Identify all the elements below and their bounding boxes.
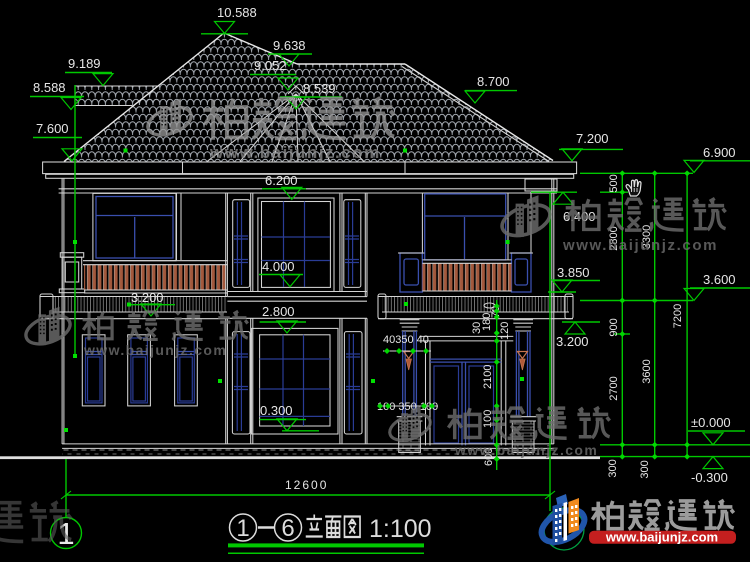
svg-text:6: 6 (281, 515, 294, 542)
svg-text:2100: 2100 (482, 365, 494, 389)
svg-text:12600: 12600 (285, 478, 328, 492)
svg-text:9.189: 9.189 (68, 56, 101, 71)
svg-text:6.900: 6.900 (703, 145, 736, 160)
svg-text:8.588: 8.588 (33, 80, 66, 95)
svg-text:2700: 2700 (608, 376, 620, 400)
svg-text:0.300: 0.300 (260, 403, 293, 418)
svg-text:www.baijunjz.com: www.baijunjz.com (605, 530, 718, 545)
svg-text:www.baijunjz.com: www.baijunjz.com (209, 143, 381, 162)
svg-text:3.200: 3.200 (556, 334, 589, 349)
svg-text:www.baijunjz.com: www.baijunjz.com (562, 237, 718, 254)
svg-text:-0.300: -0.300 (691, 470, 728, 485)
svg-text:±0.000: ±0.000 (691, 415, 731, 430)
svg-text:1: 1 (236, 515, 249, 542)
svg-text:1:100: 1:100 (369, 515, 432, 543)
svg-text:9.638: 9.638 (273, 38, 306, 53)
svg-text:500: 500 (608, 174, 620, 192)
svg-text:40350 40: 40350 40 (383, 334, 429, 346)
svg-text:www.baijunjz.com: www.baijunjz.com (454, 442, 598, 458)
svg-text:4.000: 4.000 (262, 259, 295, 274)
svg-text:2.800: 2.800 (262, 304, 295, 319)
svg-text:8.700: 8.700 (477, 74, 510, 89)
svg-text:3600: 3600 (641, 359, 653, 383)
svg-text:8.539: 8.539 (303, 81, 336, 96)
svg-text:7.600: 7.600 (36, 121, 69, 136)
svg-text:3.600: 3.600 (703, 272, 736, 287)
svg-text:9.052: 9.052 (254, 58, 287, 73)
svg-text:3.200: 3.200 (131, 290, 164, 305)
svg-text:3.850: 3.850 (557, 265, 590, 280)
svg-text:7200: 7200 (672, 304, 684, 328)
svg-text:10.588: 10.588 (217, 5, 257, 20)
svg-text:300: 300 (607, 459, 619, 477)
svg-text:300: 300 (639, 460, 651, 478)
svg-text:6.200: 6.200 (265, 173, 298, 188)
svg-text:www.baijunjz.com: www.baijunjz.com (83, 342, 227, 358)
svg-text:120: 120 (499, 322, 511, 340)
svg-text:7.200: 7.200 (576, 131, 609, 146)
svg-text:900: 900 (608, 318, 620, 336)
